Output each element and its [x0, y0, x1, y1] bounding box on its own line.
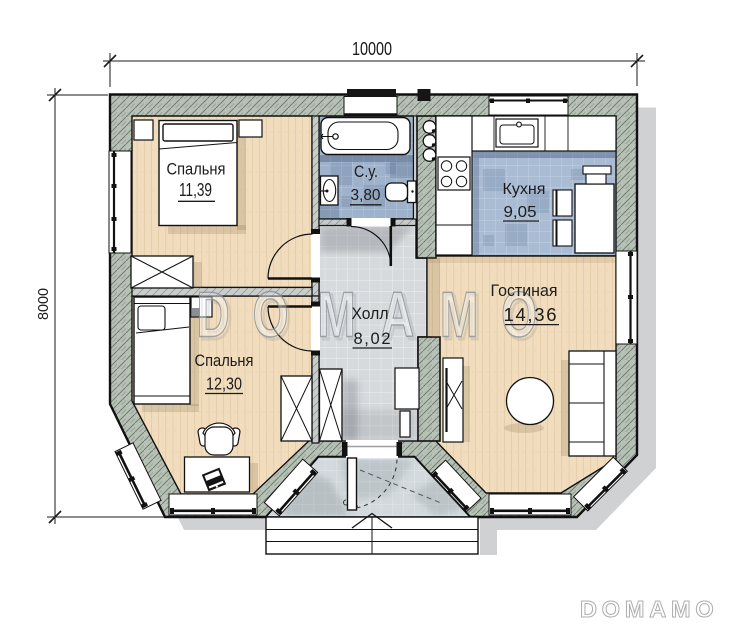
svg-text:14,36: 14,36	[504, 304, 557, 325]
svg-text:Спальня: Спальня	[195, 351, 254, 370]
svg-text:Кухня: Кухня	[503, 181, 546, 198]
svg-text:8000: 8000	[35, 288, 52, 320]
svg-text:12,30: 12,30	[206, 374, 242, 394]
svg-text:Холл: Холл	[352, 304, 389, 323]
svg-text:O: O	[253, 279, 289, 350]
svg-text:8,02: 8,02	[354, 330, 391, 348]
svg-text:9,05: 9,05	[504, 204, 537, 221]
svg-text:DOMAMO: DOMAMO	[580, 596, 718, 622]
svg-text:Гостиная: Гостиная	[491, 281, 558, 300]
svg-text:3,80: 3,80	[351, 187, 381, 204]
svg-text:Спальня: Спальня	[167, 160, 226, 179]
svg-text:M: M	[317, 279, 355, 350]
svg-text:11,39: 11,39	[179, 180, 212, 200]
svg-text:M: M	[440, 279, 478, 350]
svg-text:D: D	[196, 279, 229, 350]
svg-text:С.у.: С.у.	[354, 163, 378, 181]
svg-text:10000: 10000	[352, 39, 392, 59]
